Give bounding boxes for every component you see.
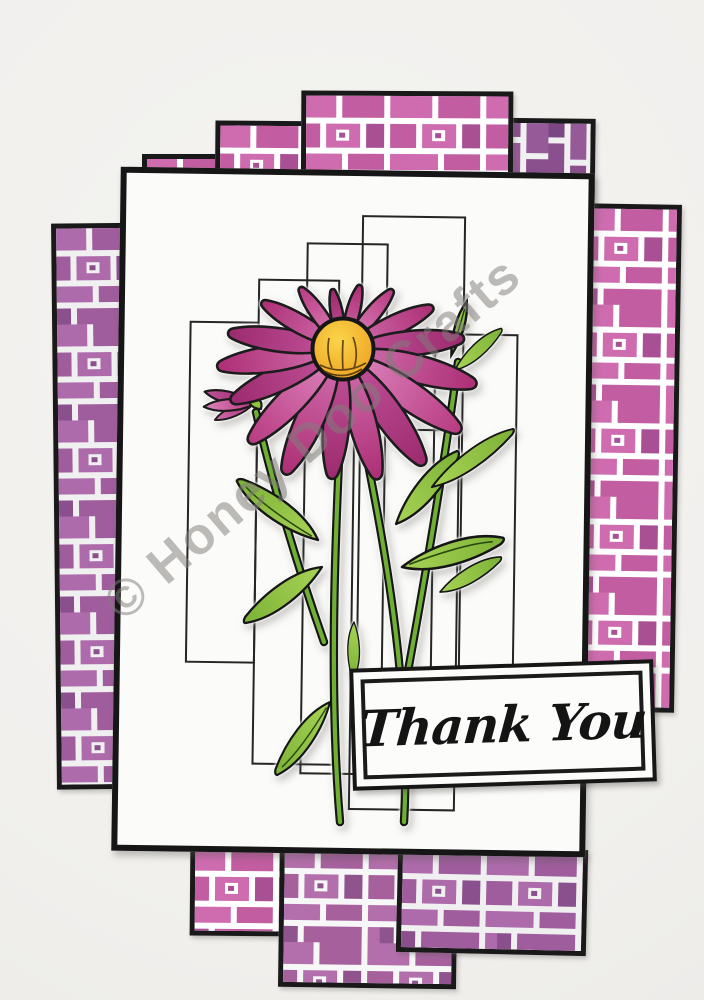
card-photo: Thank You © Honey Doo Crafts [0,0,704,1000]
flower-center [313,319,374,380]
pattern-fill [401,851,583,951]
sentiment-box: Thank You [349,659,657,790]
pattern-strip-bottom-left [190,844,291,937]
pattern-strip-bottom-right [396,846,588,956]
flower-petals [215,283,480,483]
pattern-fill [195,849,286,932]
sentiment-label: Thank You [358,695,648,754]
sentiment-frame: Thank You [360,671,645,780]
sentiment-mat: Thank You [353,663,652,786]
